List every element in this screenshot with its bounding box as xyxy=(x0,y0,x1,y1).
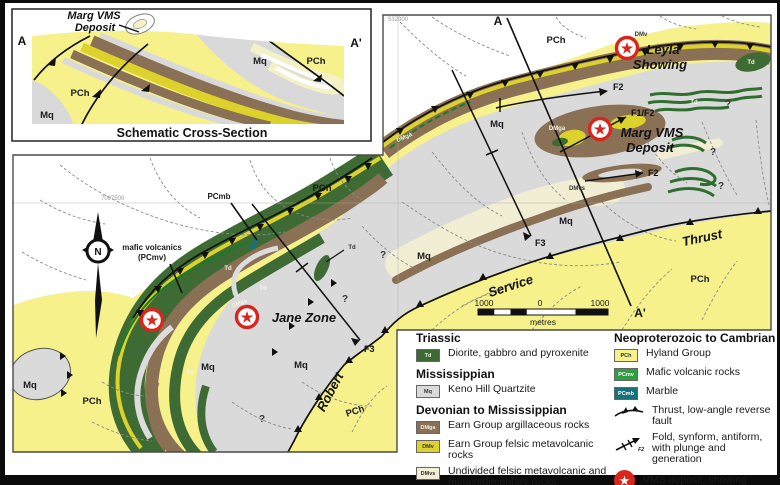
pcmv-swatch: PCmv xyxy=(614,368,638,381)
legend-header-triassic: Triassic xyxy=(416,331,612,345)
legend-item-label: Earn Group felsic metavolcanic rocks xyxy=(448,439,608,461)
compass-n-label: N xyxy=(94,247,101,258)
legend-item-pcmv: PCmv Mafic volcanic rocks xyxy=(614,367,776,381)
section-label-a: A xyxy=(494,14,503,28)
query-mark: ? xyxy=(342,294,348,305)
unit-label-mq: Mq xyxy=(559,216,573,227)
query-mark: ? xyxy=(259,414,265,425)
star-glyph: ★ xyxy=(619,473,631,485)
cs-label-a-prime: A' xyxy=(350,36,362,50)
legend-item-pcmb: PCmb Marble xyxy=(614,386,776,400)
legend-item-label: Undivided felsic metavolcanic and metase… xyxy=(448,466,608,485)
unit-label-mq: Mq xyxy=(490,119,504,130)
unit-label-mq: Mq xyxy=(294,360,308,371)
legend-column-right: Neoproterozoic to Cambrian PCh Hyland Gr… xyxy=(614,330,776,485)
star-glyph: ★ xyxy=(621,40,634,56)
unit-label-pch: PCh xyxy=(83,396,102,407)
leyla-showing-label2: Showing xyxy=(633,57,687,72)
unit-label-pch: PCh xyxy=(691,274,710,285)
legend-item-label: Marble xyxy=(646,386,678,397)
vms-star-marg: ★ xyxy=(590,119,611,140)
legend-column-left: Triassic Td Diorite, gabbro and pyroxeni… xyxy=(416,330,612,485)
unit-label-td: Td xyxy=(186,370,194,376)
legend-item-label: Keno Hill Quartzite xyxy=(448,384,536,395)
legend-header-neoprot-cambrian: Neoproterozoic to Cambrian xyxy=(614,331,776,345)
legend-item-pch: PCh Hyland Group xyxy=(614,348,776,362)
cs-unit-mq: Mq xyxy=(40,110,54,121)
fold-label-f1f2: F1/F2 xyxy=(631,108,655,118)
cs-unit-pch: PCh xyxy=(307,56,326,67)
cs-label-a: A xyxy=(18,34,27,48)
legend-header-dev-miss: Devonian to Mississippian xyxy=(416,403,612,417)
fold-generation-tag: F2 xyxy=(638,447,644,453)
fold-label-f2: F2 xyxy=(613,82,624,92)
td-swatch: Td xyxy=(416,349,440,362)
legend-symbol-label: VMS deposit, showing xyxy=(643,475,747,485)
scale-zero: 0 xyxy=(538,298,543,308)
fold-symbol-icon: F2 xyxy=(614,433,644,453)
unit-label-mq: Mq xyxy=(201,362,215,373)
query-mark: ? xyxy=(710,147,716,158)
pcmb-swatch: PCmb xyxy=(614,387,638,400)
legend-item-label: Diorite, gabbro and pyroxenite xyxy=(448,348,589,359)
vms-star-jane-east: ★ xyxy=(237,307,258,328)
jane-zone-label: Jane Zone xyxy=(272,310,336,325)
legend-item-dmvs: DMvs Undivided felsic metavolcanic and m… xyxy=(416,466,612,485)
unit-label-td: Td xyxy=(224,266,232,272)
pcmv-callout2: (PCmv) xyxy=(138,253,166,262)
pcmv-callout: mafic volcanics xyxy=(122,243,182,252)
unit-label-dmv: DMv xyxy=(635,32,648,38)
cs-deposit-label2: Deposit xyxy=(75,22,117,34)
unit-label-mq: Mq xyxy=(23,380,37,391)
legend-item-td: Td Diorite, gabbro and pyroxenite xyxy=(416,348,612,362)
section-label-a-prime: A' xyxy=(634,306,646,320)
legend-item-label: Earn Group argillaceous rocks xyxy=(448,420,589,431)
dmga-swatch: DMga xyxy=(416,421,440,434)
legend-header-mississippian: Mississippian xyxy=(416,367,612,381)
vms-star-jane-west: ★ xyxy=(142,310,163,331)
cs-deposit-label: Marg VMS xyxy=(67,10,121,22)
fold-label-f3: F3 xyxy=(535,238,546,248)
pcmb-callout: PCmb xyxy=(207,192,230,201)
dmv-swatch: DMv xyxy=(416,440,440,453)
unit-label-pch: PCh xyxy=(313,183,332,194)
pch-swatch: PCh xyxy=(614,349,638,362)
fold-label-f3b: F3 xyxy=(364,344,375,354)
cs-title: Schematic Cross-Section xyxy=(117,126,268,140)
cs-unit-mq: Mq xyxy=(253,56,267,67)
query-mark: ? xyxy=(380,250,386,261)
vms-star-icon: ★ xyxy=(614,470,635,485)
legend-symbol-fold: F2 Fold, synform, antiform, with plunge … xyxy=(614,432,776,465)
legend-item-label: Mafic volcanic rocks xyxy=(646,367,740,378)
legend-symbol-thrust: Thrust, low-angle reverse fault xyxy=(614,405,776,427)
mq-swatch: Mq xyxy=(416,385,440,398)
unit-label-dmvs: DMvs xyxy=(569,186,586,192)
grid-northing-label: 7097500 xyxy=(101,196,125,202)
query-mark: ? xyxy=(725,99,731,110)
unit-label-dmga: DMga xyxy=(549,126,566,132)
legend-item-dmv: DMv Earn Group felsic metavolcanic rocks xyxy=(416,439,612,461)
marg-deposit-label2: Deposit xyxy=(626,140,674,155)
legend: Triassic Td Diorite, gabbro and pyroxeni… xyxy=(414,330,776,476)
scale-right: 1000 xyxy=(591,298,610,308)
star-glyph: ★ xyxy=(594,121,607,137)
vms-star-leyla: ★ xyxy=(617,38,638,59)
legend-item-label: Hyland Group xyxy=(646,348,711,359)
cs-unit-pch: PCh xyxy=(71,88,90,99)
star-glyph: ★ xyxy=(241,309,254,325)
cross-section: A A' Marg VMS Deposit PCh PCh Mq Mq Sche… xyxy=(12,9,371,141)
legend-symbol-vms: ★ VMS deposit, showing xyxy=(614,470,776,485)
star-glyph: ★ xyxy=(146,312,159,328)
unit-label-pch: PCh xyxy=(547,35,566,46)
fold-label-f2b: F2 xyxy=(648,168,659,178)
unit-label-td: Td xyxy=(348,245,356,251)
legend-item-mq: Mq Keno Hill Quartzite xyxy=(416,384,612,398)
unit-label-td: Td xyxy=(747,60,755,66)
dmvs-swatch: DMvs xyxy=(416,467,440,480)
legend-symbol-label: Fold, synform, antiform, with plunge and… xyxy=(652,432,776,465)
unit-label-mq: Mq xyxy=(417,251,431,262)
leyla-showing-label: Leyla xyxy=(646,42,679,57)
scale-unit: metres xyxy=(530,317,556,327)
marg-deposit-label: Marg VMS xyxy=(621,125,684,140)
unit-label-td: Td xyxy=(259,286,267,292)
grid-easting-label: 532000 xyxy=(388,17,409,23)
geologic-map-figure: N 1000 0 1000 metres ★ ★ ★ ★ A xyxy=(0,0,780,485)
query-mark: ? xyxy=(718,181,724,192)
unit-label-td: Td xyxy=(690,100,698,106)
legend-symbol-label: Thrust, low-angle reverse fault xyxy=(652,405,776,427)
legend-item-dmga: DMga Earn Group argillaceous rocks xyxy=(416,420,612,434)
